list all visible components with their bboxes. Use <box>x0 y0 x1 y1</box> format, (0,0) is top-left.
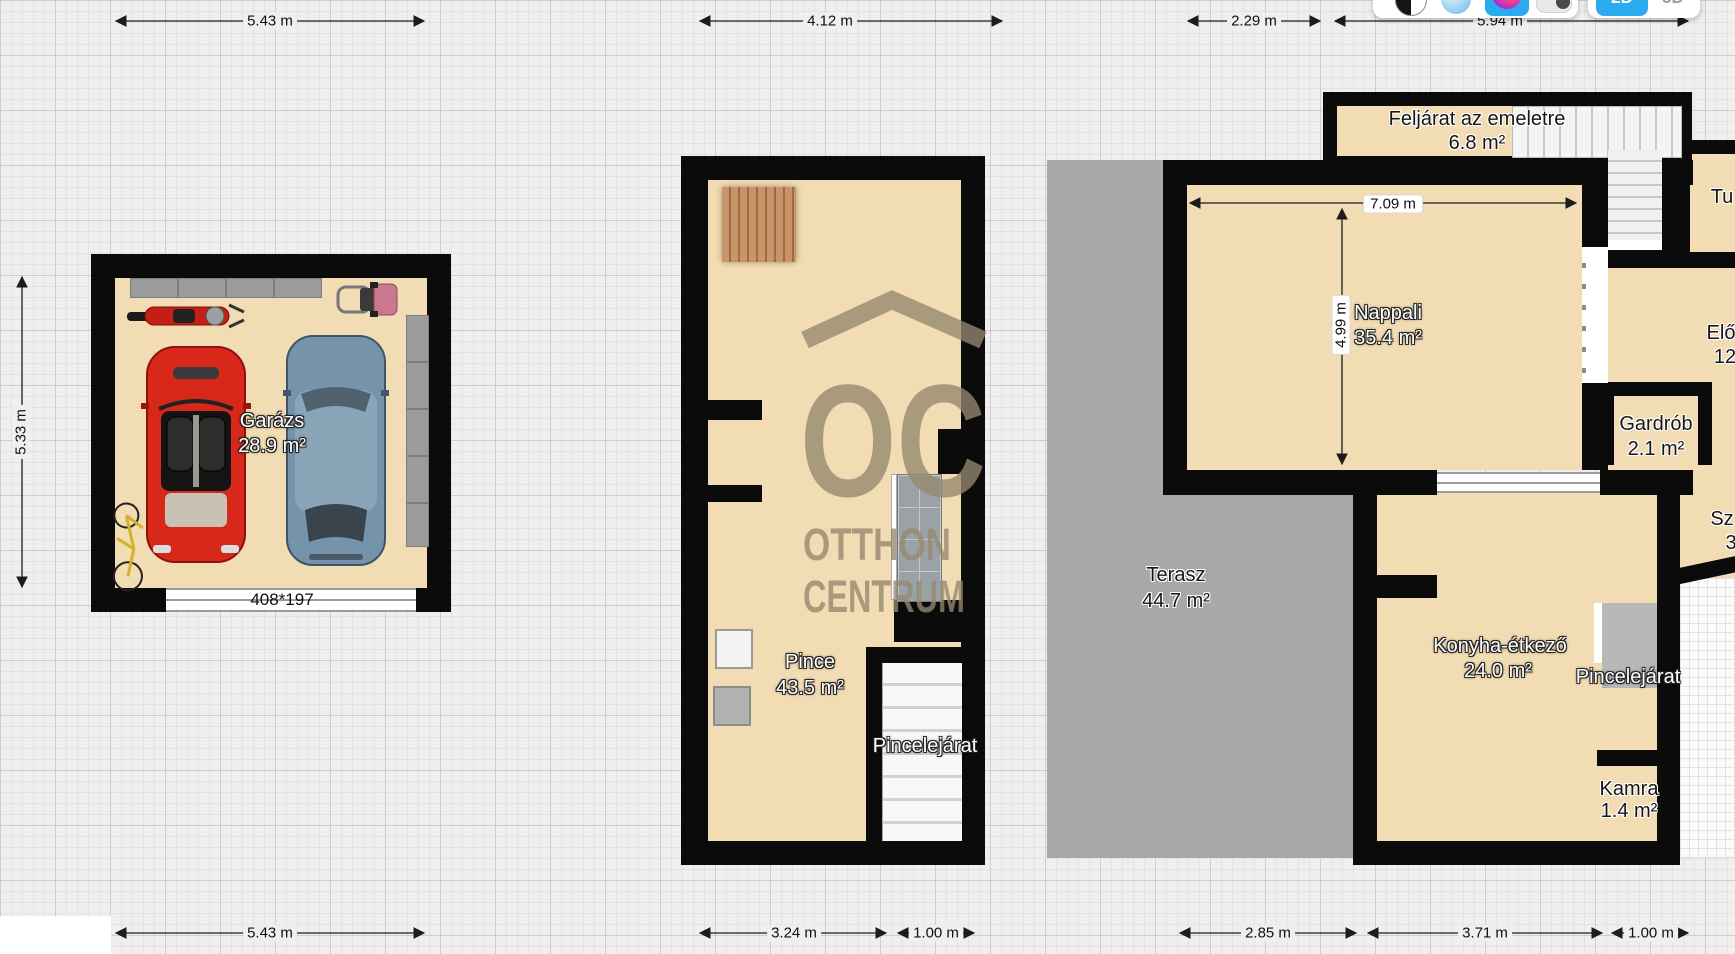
svg-text:OC: OC <box>800 351 986 530</box>
dimension-label: 2.85 m <box>1241 925 1295 942</box>
dimension-label: 5.43 m <box>243 925 297 942</box>
view-2d-button[interactable]: 2D <box>1596 0 1648 16</box>
otthon-centrum-watermark: OC OTTHON CENTRUM <box>795 288 995 623</box>
dimension-label: 7.09 m <box>1363 195 1423 214</box>
floorplan-canvas[interactable]: { "toolbar": { "icons": ["contrast-icon"… <box>0 0 1735 954</box>
material-light-icon[interactable] <box>1441 0 1471 14</box>
dimension-label: 5.33 m <box>13 405 30 459</box>
room-label-pincelejarat-basement: Pincelejárat <box>873 734 978 758</box>
dimension-label: 4.99 m <box>1332 295 1351 355</box>
svg-text:OTTHON: OTTHON <box>803 519 951 570</box>
bottom-left-panel <box>0 916 111 954</box>
room-label-pincelejarat-ground: Pincelejárat <box>1576 665 1681 689</box>
dimension-label: 4.12 m <box>803 13 857 30</box>
toggle-knob <box>1556 0 1570 9</box>
dimension-label: 2.29 m <box>1227 13 1281 30</box>
dimension-label: 1.00 m <box>1624 925 1678 942</box>
contrast-icon[interactable] <box>1395 0 1427 16</box>
otthon-centrum-logo: OC OTTHON CENTRUM <box>795 288 995 623</box>
dimension-label: 3.24 m <box>767 925 821 942</box>
toggle-switch[interactable] <box>1536 0 1572 13</box>
svg-text:CENTRUM: CENTRUM <box>803 571 965 622</box>
dimension-label: 5.43 m <box>243 13 297 30</box>
dimension-label: 1.00 m <box>909 925 963 942</box>
material-color-icon[interactable] <box>1485 0 1529 16</box>
dimension-label: 3.71 m <box>1458 925 1512 942</box>
view-3d-button[interactable]: 3D <box>1662 0 1684 8</box>
